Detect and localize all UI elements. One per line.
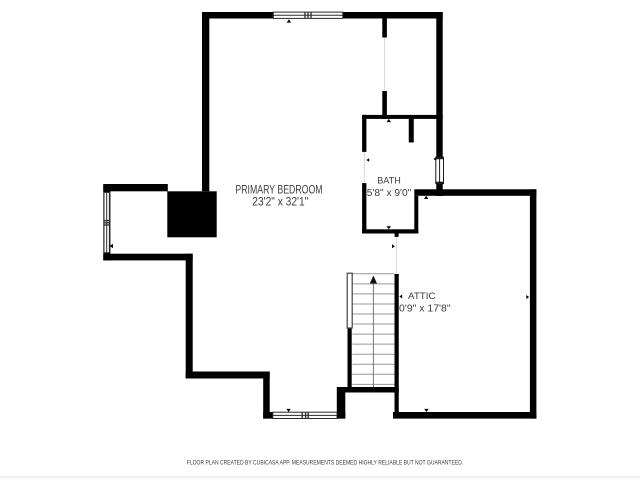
svg-text:BATH: BATH: [377, 174, 401, 185]
svg-text:FLOOR PLAN CREATED BY CUBICASA: FLOOR PLAN CREATED BY CUBICASA APP. MEAS…: [187, 460, 464, 466]
svg-text:0'9" x 17'8": 0'9" x 17'8": [399, 304, 451, 315]
svg-text:23'2" x 32'1": 23'2" x 32'1": [252, 195, 308, 209]
svg-text:5'8" x 9'0": 5'8" x 9'0": [367, 188, 412, 199]
svg-text:ATTIC: ATTIC: [408, 291, 436, 302]
